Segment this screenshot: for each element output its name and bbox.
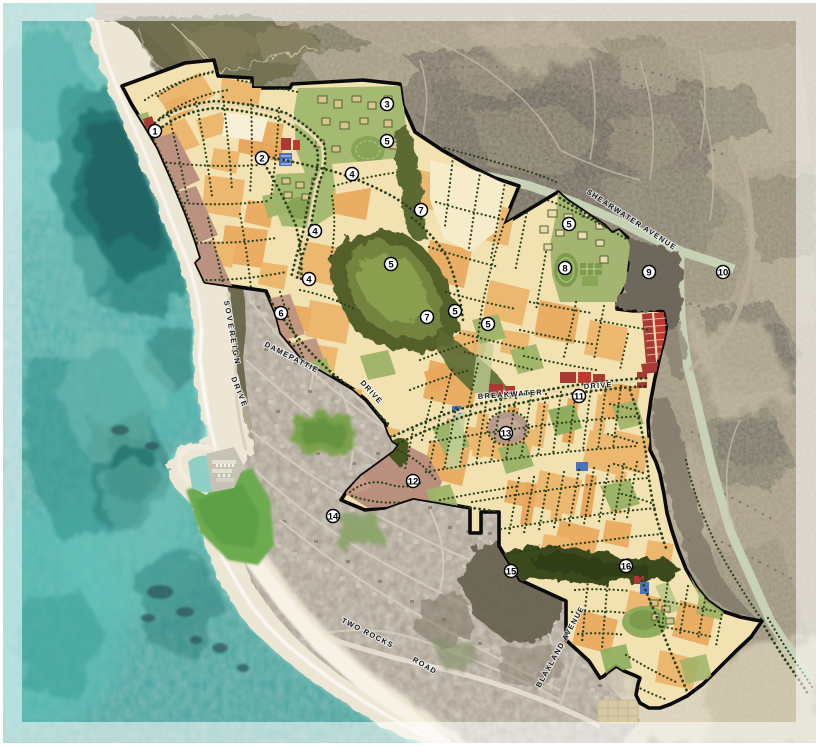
svg-text:7: 7 xyxy=(424,313,429,324)
svg-text:16: 16 xyxy=(621,562,632,573)
svg-text:12: 12 xyxy=(408,477,419,488)
svg-text:5: 5 xyxy=(384,137,390,148)
svg-text:8: 8 xyxy=(562,264,567,275)
svg-text:4: 4 xyxy=(349,170,355,181)
svg-text:6: 6 xyxy=(278,309,283,320)
svg-text:2: 2 xyxy=(259,154,264,165)
svg-text:10: 10 xyxy=(718,268,729,279)
svg-text:4: 4 xyxy=(312,227,318,238)
svg-text:5: 5 xyxy=(485,320,491,331)
svg-text:1: 1 xyxy=(152,127,158,138)
svg-text:5: 5 xyxy=(388,260,394,271)
svg-text:13: 13 xyxy=(501,429,512,440)
svg-text:14: 14 xyxy=(328,512,339,523)
svg-text:9: 9 xyxy=(646,268,651,279)
svg-text:15: 15 xyxy=(506,567,517,578)
svg-text:5: 5 xyxy=(452,307,458,318)
svg-text:3: 3 xyxy=(384,100,389,111)
svg-text:4: 4 xyxy=(306,275,312,286)
svg-text:5: 5 xyxy=(566,220,572,231)
svg-text:11: 11 xyxy=(574,392,585,403)
svg-text:7: 7 xyxy=(418,206,423,217)
